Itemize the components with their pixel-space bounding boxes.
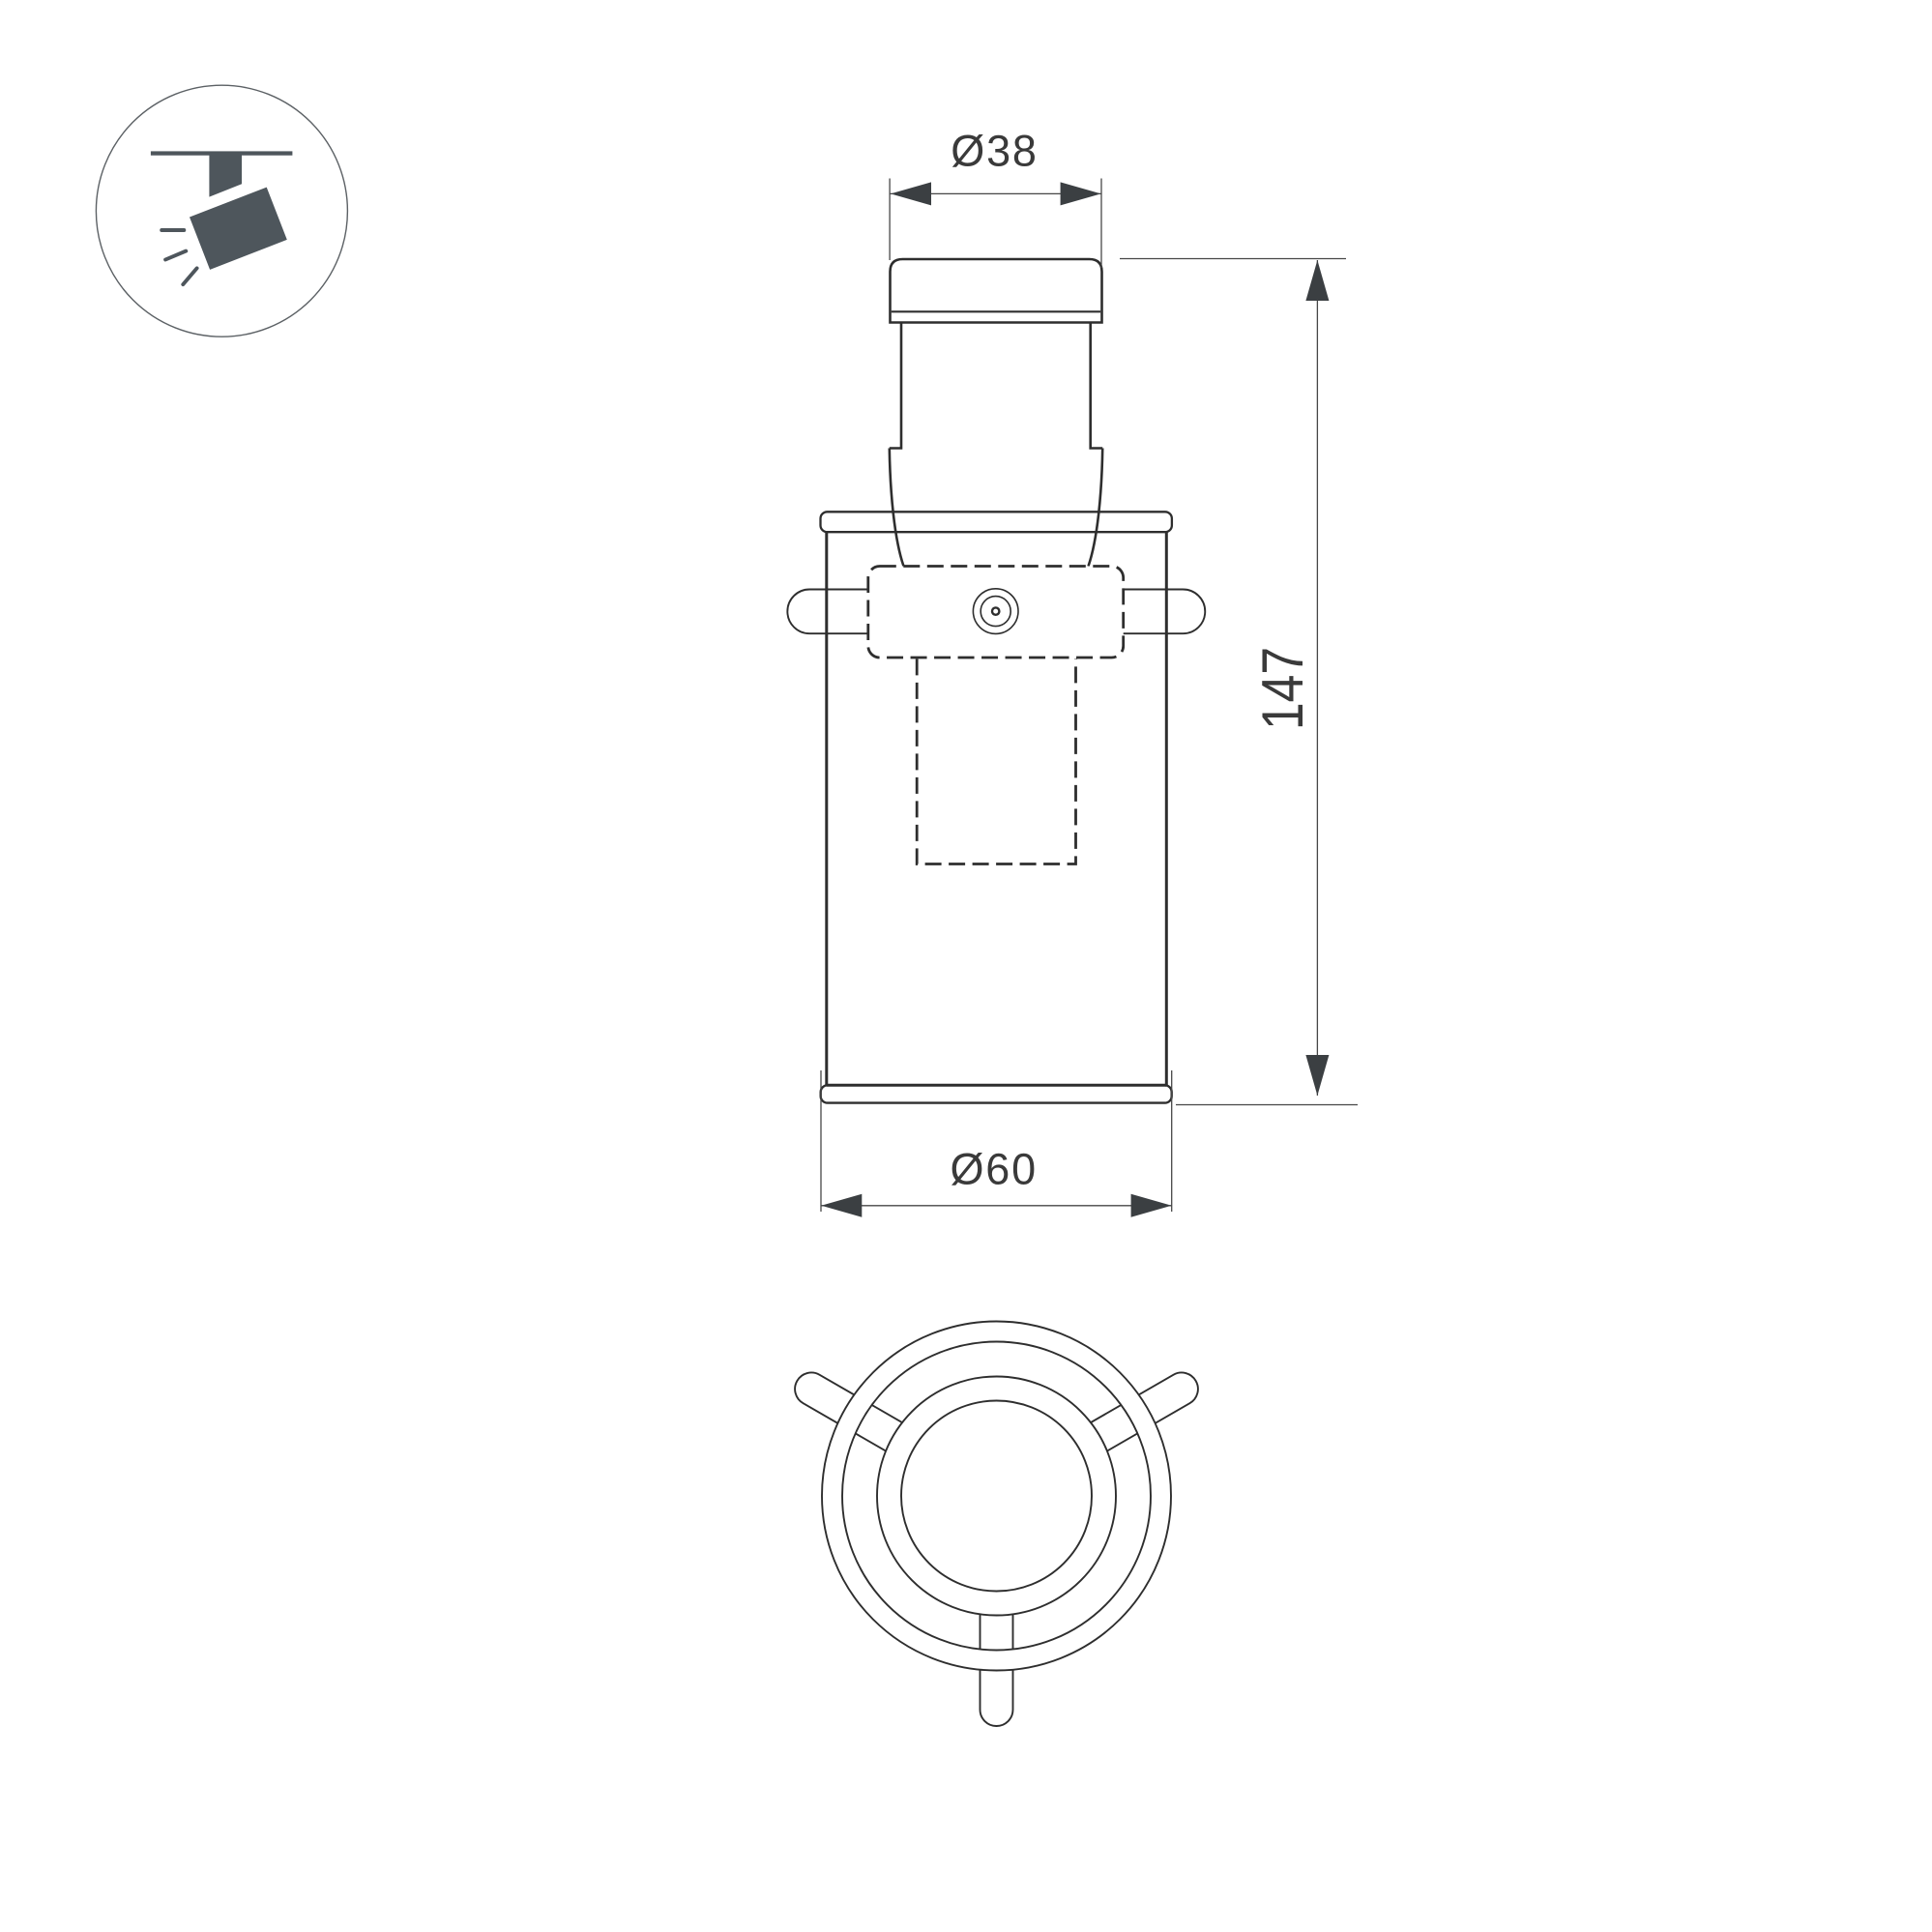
svg-text:Ø38: Ø38 xyxy=(951,127,1038,176)
svg-text:Ø60: Ø60 xyxy=(950,1145,1037,1194)
svg-text:147: 147 xyxy=(1249,647,1315,730)
